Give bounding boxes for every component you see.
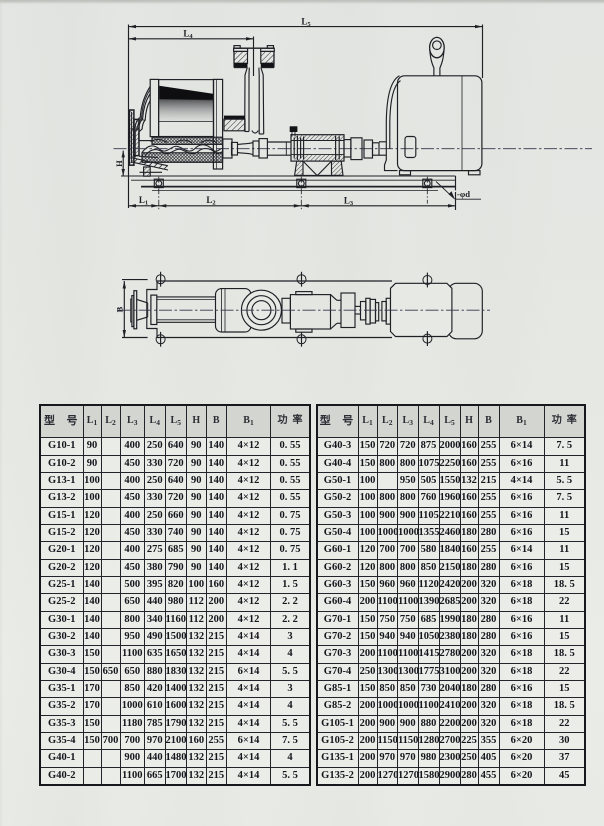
svg-text:L3: L3	[344, 196, 354, 208]
svg-text:-φd: -φd	[457, 189, 470, 199]
svg-text:H: H	[114, 160, 124, 167]
svg-text:L1: L1	[139, 195, 148, 207]
svg-text:L5: L5	[301, 17, 311, 29]
svg-text:B: B	[115, 306, 125, 312]
svg-text:L4: L4	[183, 28, 193, 40]
svg-text:L2: L2	[206, 195, 215, 207]
